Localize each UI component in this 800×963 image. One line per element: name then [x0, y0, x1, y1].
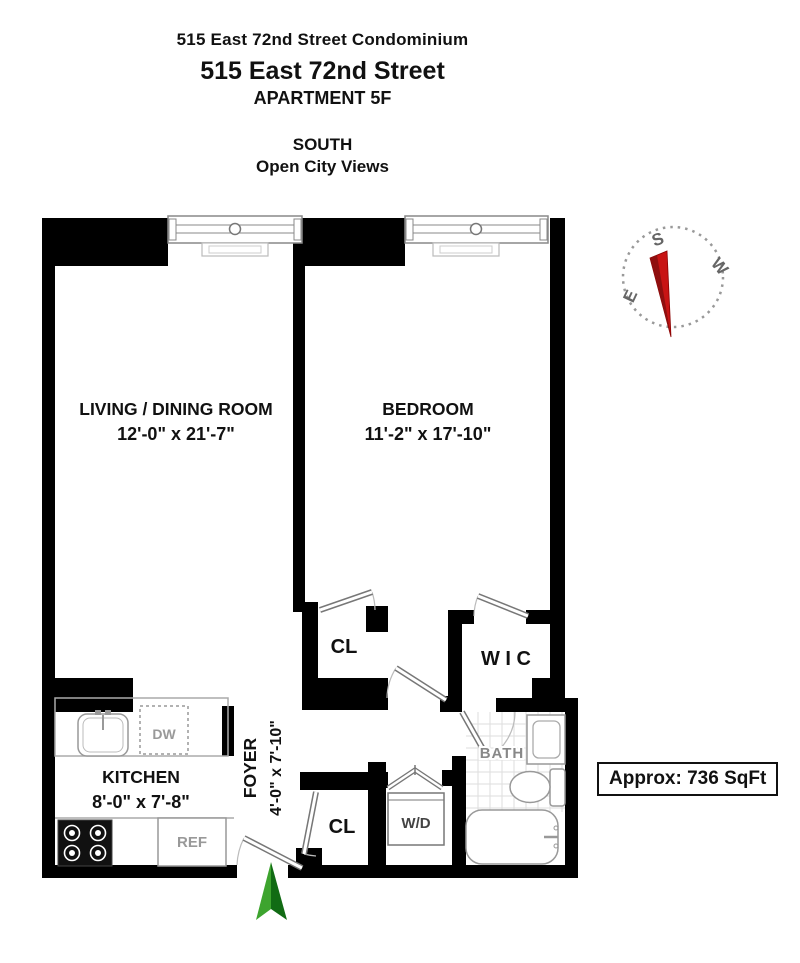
floor-plan-svg: DW REF W/D [0, 0, 800, 963]
foyer-dims: 4'-0" x 7'-10" [268, 720, 285, 816]
bedroom-dims: 11'-2" x 17'-10" [365, 424, 492, 444]
window-lock-icon [471, 224, 482, 235]
washer-dryer: W/D [388, 793, 444, 845]
bedroom-label: BEDROOM [382, 399, 473, 419]
wall-right-lower [565, 700, 578, 878]
foyer-label: FOYER [240, 738, 260, 799]
wall-right-upper [550, 218, 565, 712]
wall-bottom-kitchen [42, 865, 237, 878]
refrigerator: REF [158, 818, 226, 866]
approx-area-badge: Approx: 736 SqFt [597, 762, 778, 796]
compass-east-label: E [619, 287, 641, 305]
kitchen-dims: 8'-0" x 7'-8" [92, 792, 190, 812]
dishwasher-label: DW [152, 726, 176, 742]
wall-wic-top-right [526, 610, 562, 624]
wall-top-middle [302, 218, 405, 266]
bedroom-closet-label: CL [331, 636, 358, 658]
wall-foyer-closet-top [300, 772, 372, 790]
bathtub [466, 810, 558, 864]
window-lock-icon [230, 224, 241, 235]
wall-bottom-right [288, 865, 578, 878]
entry-door-arc [237, 838, 244, 865]
bedroom-door-arc [387, 668, 396, 698]
wall-wd-stub-left [375, 772, 388, 788]
window-living [168, 216, 302, 256]
wall-kitchen-block [53, 678, 133, 712]
living-room-dims: 12'-0" x 21'-7" [117, 424, 235, 444]
wall-entry-stub [296, 848, 322, 878]
wall-left [42, 218, 55, 878]
wall-room-divider [293, 218, 305, 610]
wall-bedroom-closet-stub [366, 606, 388, 632]
wall-bath-top [496, 698, 578, 712]
compass-tick-ring [623, 227, 723, 327]
floor-plan-page: { "header": { "building": "515 East 72nd… [0, 0, 800, 963]
wall-wic-top-left [448, 610, 474, 624]
window-bedroom [405, 216, 548, 256]
foyer-closet-label: CL [329, 816, 356, 838]
faucet-handle [95, 710, 101, 715]
dishwasher: DW [140, 706, 188, 754]
wall-wic-notch [532, 678, 562, 700]
compass-rose: S W E [619, 227, 732, 337]
faucet-handle [105, 710, 111, 715]
living-room-label: LIVING / DINING ROOM [79, 399, 272, 419]
wall-bedroom-closet-bottom [302, 678, 388, 710]
wall-top-left [42, 218, 168, 266]
bath-sink [527, 715, 565, 764]
washer-dryer-label: W/D [401, 815, 430, 832]
wic-label: W I C [481, 648, 531, 670]
wall-wd-bath-column [452, 756, 466, 878]
compass-west-label: W [707, 254, 732, 279]
entry-arrow-icon [256, 862, 287, 920]
kitchen-sink [78, 710, 128, 756]
bath-label: BATH [480, 745, 525, 762]
kitchen-label: KITCHEN [102, 767, 180, 787]
stove [58, 820, 112, 866]
toilet [510, 769, 565, 806]
refrigerator-label: REF [177, 834, 207, 851]
wic-door-arc [474, 596, 478, 616]
wall-wd-stub-right [442, 770, 452, 786]
compass-south-label: S [649, 229, 666, 251]
